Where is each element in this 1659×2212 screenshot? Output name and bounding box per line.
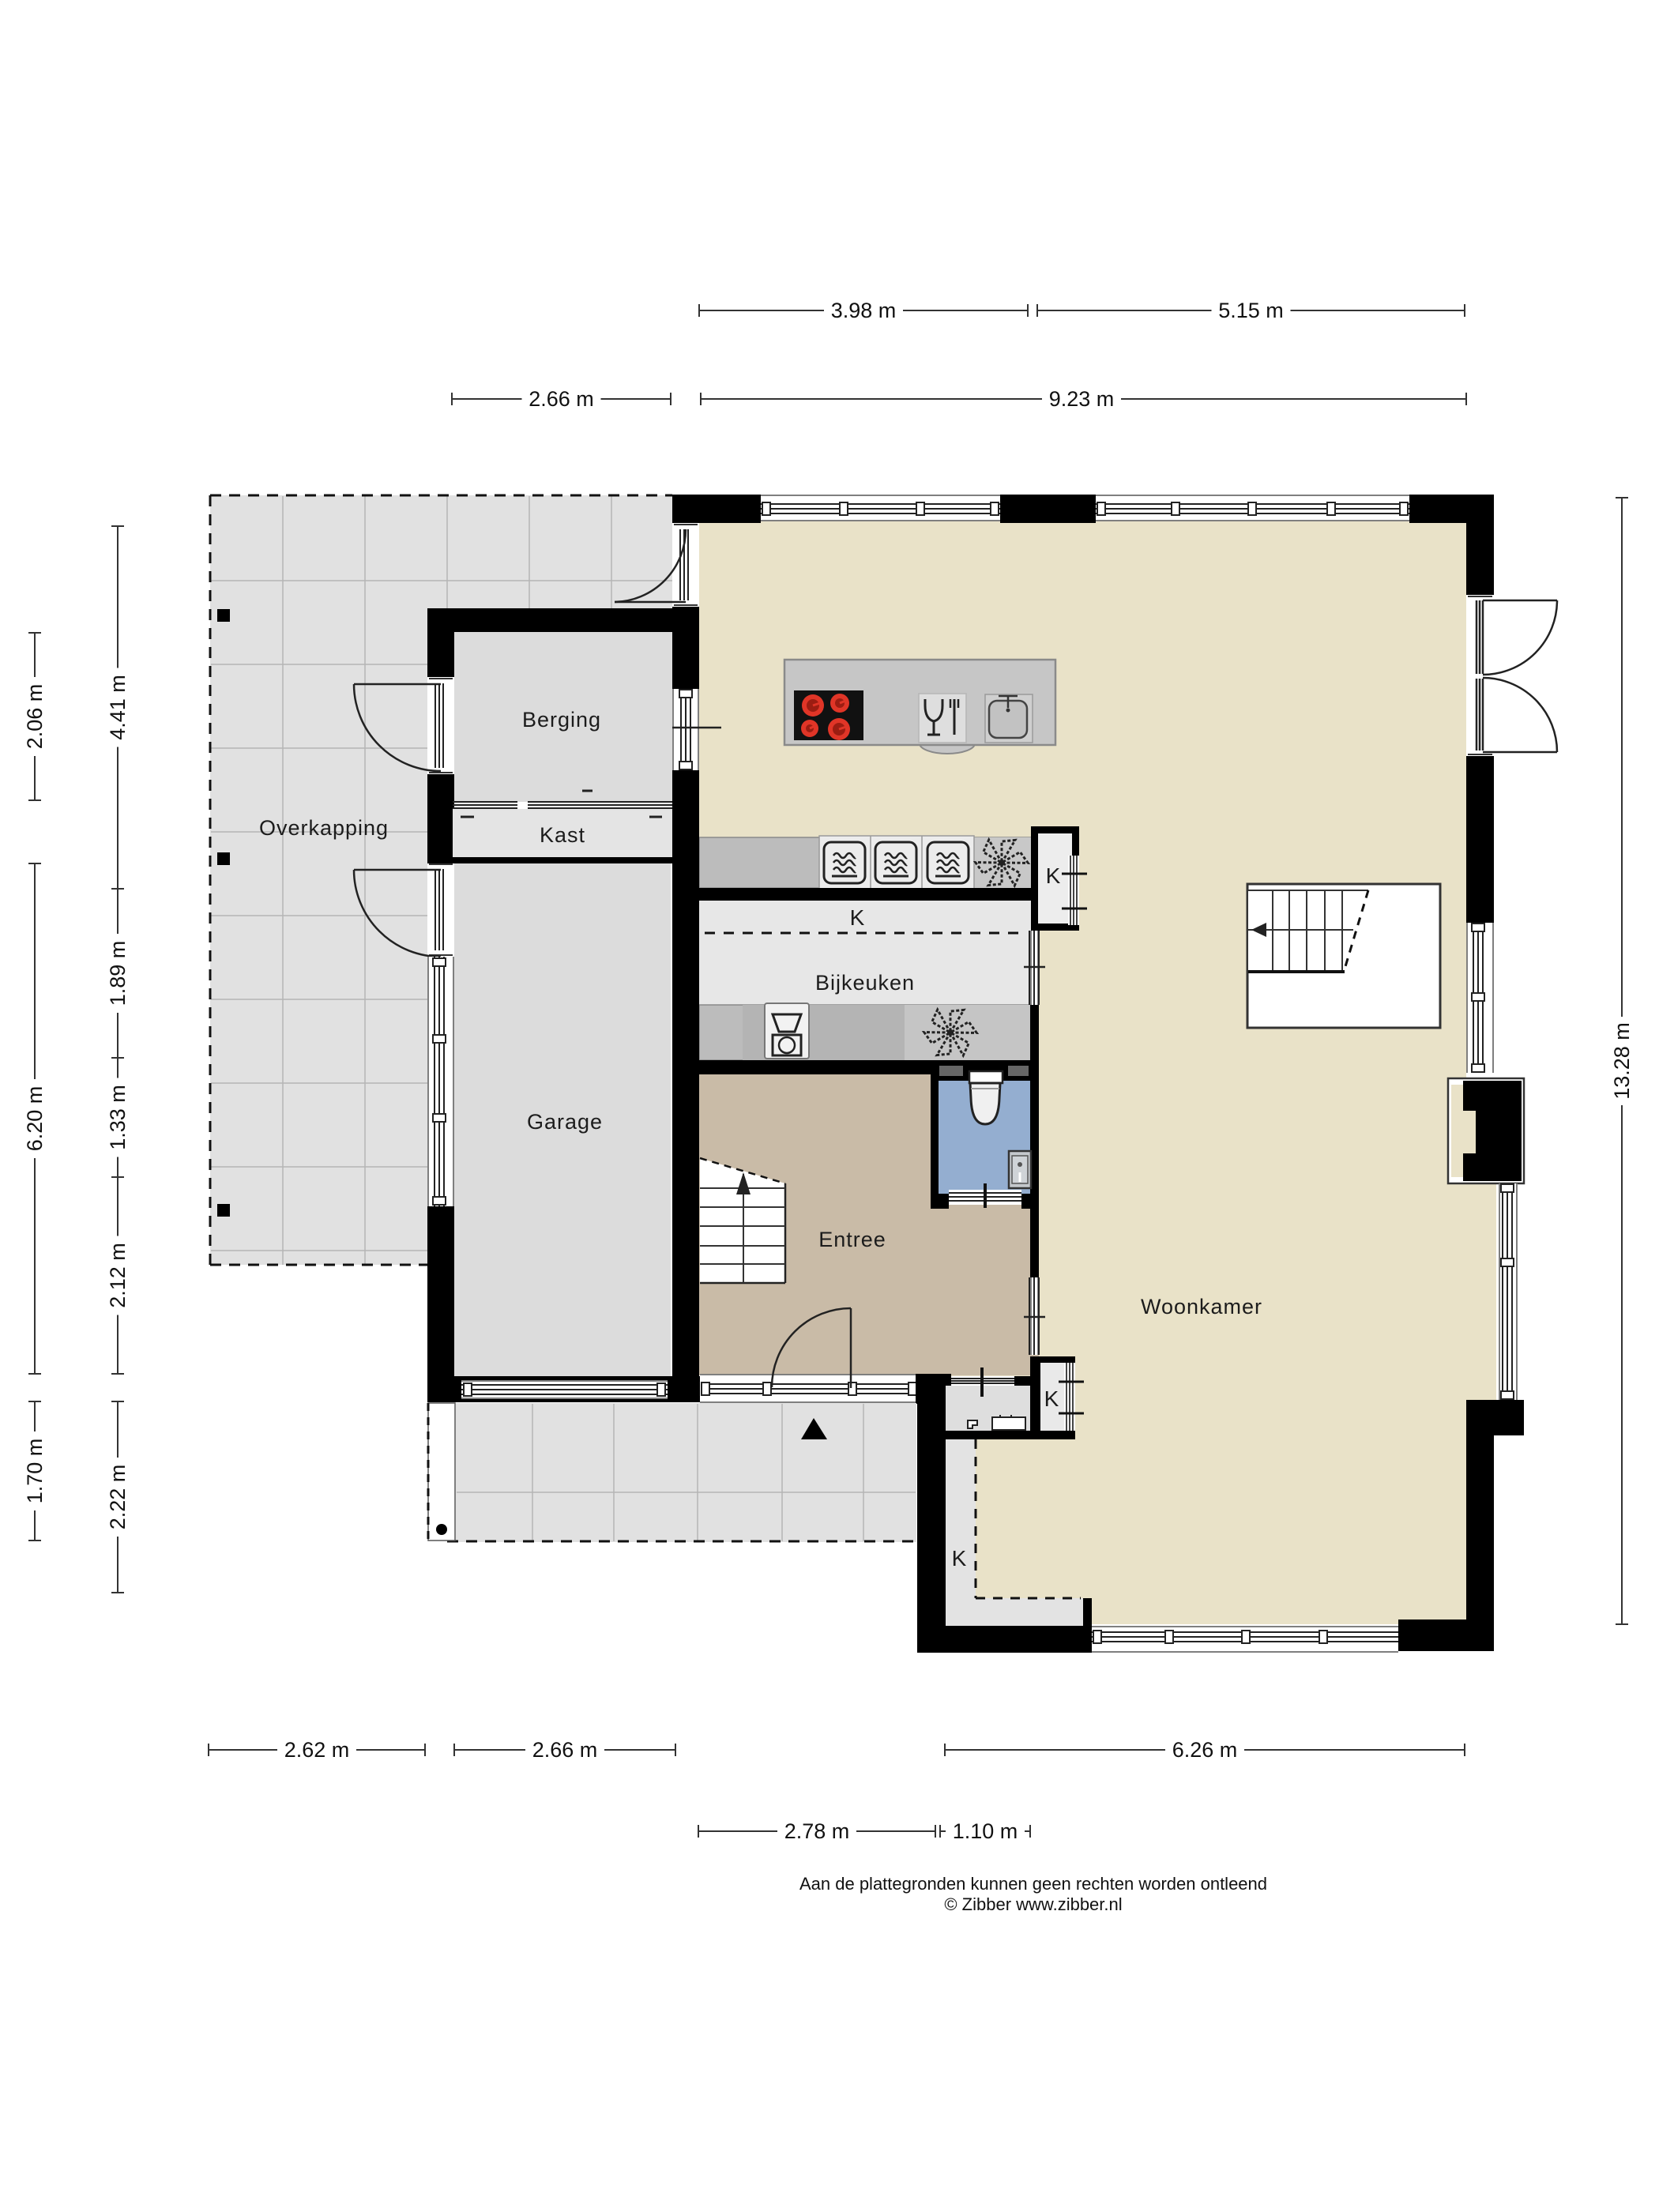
svg-text:K: K [1044,1386,1059,1411]
svg-text:6.26 m: 6.26 m [1172,1738,1238,1762]
svg-text:13.28 m: 13.28 m [1610,1022,1634,1100]
svg-text:2.12 m: 2.12 m [106,1243,130,1308]
svg-text:Aan de plattegronden kunnen ge: Aan de plattegronden kunnen geen rechten… [799,1874,1267,1894]
svg-text:1.89 m: 1.89 m [106,941,130,1006]
svg-text:Berging: Berging [522,708,601,732]
svg-text:Garage: Garage [527,1110,603,1134]
svg-text:2.62 m: 2.62 m [284,1738,350,1762]
svg-text:Bijkeuken: Bijkeuken [815,971,915,995]
svg-text:© Zibber www.zibber.nl: © Zibber www.zibber.nl [944,1894,1122,1914]
svg-text:1.33 m: 1.33 m [106,1085,130,1150]
svg-text:1.10 m: 1.10 m [953,1819,1018,1843]
svg-text:2.78 m: 2.78 m [784,1819,850,1843]
svg-text:5.15 m: 5.15 m [1218,299,1284,322]
svg-text:K: K [1046,863,1061,888]
svg-text:Overkapping: Overkapping [259,816,389,840]
svg-text:3.98 m: 3.98 m [831,299,897,322]
svg-text:9.23 m: 9.23 m [1049,387,1115,411]
svg-text:Entree: Entree [818,1228,886,1251]
svg-text:Woonkamer: Woonkamer [1141,1295,1262,1319]
svg-text:Kast: Kast [540,823,585,847]
svg-text:6.20 m: 6.20 m [23,1086,47,1152]
svg-text:K: K [952,1546,967,1571]
svg-text:4.41 m: 4.41 m [106,675,130,740]
svg-text:2.06 m: 2.06 m [23,684,47,750]
svg-text:2.66 m: 2.66 m [529,387,594,411]
svg-text:2.22 m: 2.22 m [106,1465,130,1530]
svg-text:1.70 m: 1.70 m [23,1439,47,1504]
svg-text:K: K [850,905,865,930]
svg-text:2.66 m: 2.66 m [532,1738,598,1762]
